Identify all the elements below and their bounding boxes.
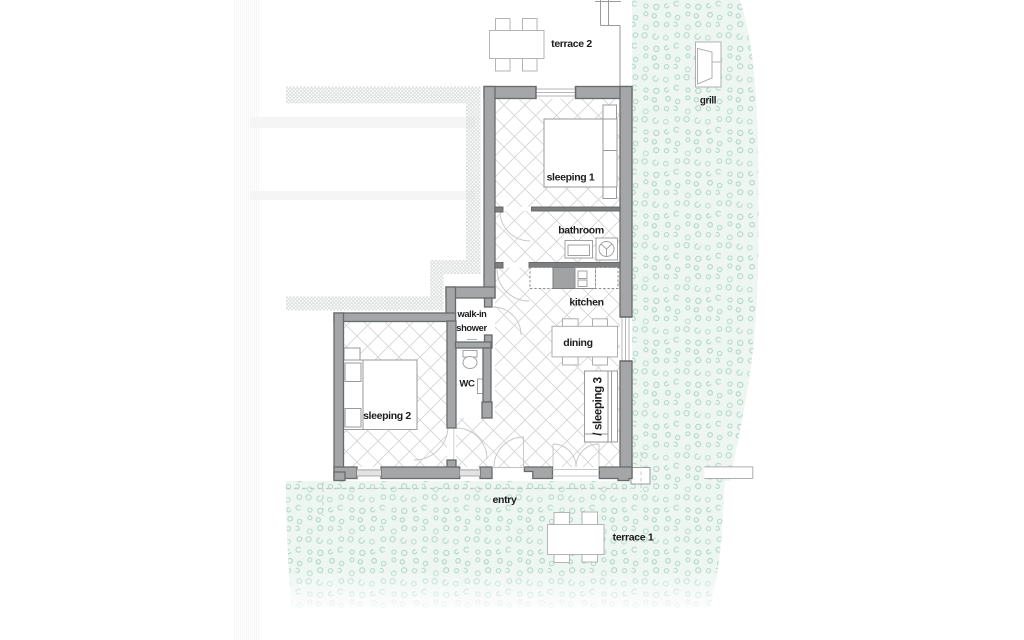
svg-text:/ sleeping 3: / sleeping 3 [593,377,605,435]
svg-text:dining: dining [563,337,592,349]
svg-text:shower: shower [456,323,487,333]
svg-text:kitchen: kitchen [569,297,603,309]
svg-text:walk-in: walk-in [456,309,487,319]
svg-text:grill: grill [700,96,717,107]
svg-text:WC: WC [459,379,475,390]
svg-text:sleeping 2: sleeping 2 [363,410,411,422]
svg-text:sleeping 1: sleeping 1 [547,172,595,184]
svg-text:bathroom: bathroom [558,225,604,237]
svg-text:entry: entry [493,494,517,506]
svg-text:terrace 1: terrace 1 [613,532,654,544]
svg-text:terrace 2: terrace 2 [551,38,592,50]
